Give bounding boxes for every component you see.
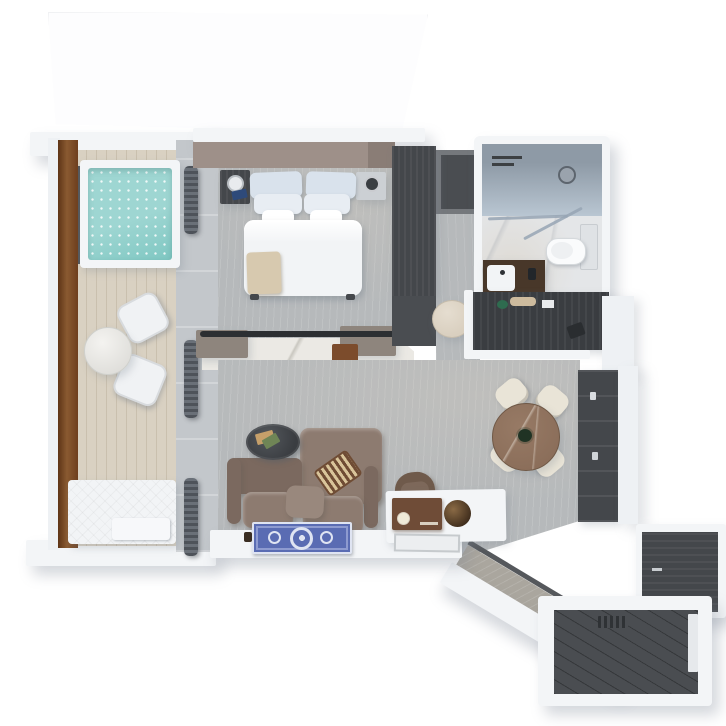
exterior-wall-right — [618, 366, 638, 524]
floor-vent — [598, 616, 628, 628]
sofa-arm-right — [364, 466, 378, 528]
centerpiece-plant — [518, 429, 532, 442]
cabinet-decor — [590, 392, 596, 400]
shower-zone — [482, 144, 602, 216]
floorplan-render — [0, 0, 726, 726]
curtain-bundle — [184, 166, 198, 234]
sofa-cushion — [285, 485, 325, 519]
bed-foot — [346, 294, 355, 300]
vanity-decor — [528, 268, 536, 280]
closet-handle — [652, 568, 662, 571]
table-lamp-right — [364, 176, 380, 192]
decor-bowl — [444, 500, 471, 527]
exterior-wall-upper-right — [602, 296, 634, 376]
rug-medallion-small — [320, 531, 333, 544]
desk-green-glass — [497, 300, 508, 309]
outdoor-dining-table — [84, 327, 132, 375]
desk-tray — [510, 297, 536, 306]
desk-wall-trim-v — [464, 290, 473, 358]
rug-medallion-small — [268, 531, 281, 544]
throw-blanket — [246, 251, 281, 294]
radio-dial — [397, 512, 410, 525]
writing-desk — [473, 292, 609, 350]
headboard-wall-notch — [368, 142, 395, 168]
plunge-pool-water — [88, 168, 172, 260]
desk-paper — [542, 300, 554, 308]
wardrobe-lower — [392, 296, 436, 346]
cabinet-decor — [592, 452, 598, 460]
shower-fixture-bar — [492, 163, 514, 166]
wardrobe — [392, 146, 436, 296]
shelf-unit-inner — [441, 155, 475, 209]
sun-lounger-cushion — [112, 518, 170, 540]
headboard-wall — [193, 142, 395, 168]
decor-hourglass — [244, 532, 252, 542]
shower-fixture-bar — [492, 156, 522, 159]
wall-cabinetry — [578, 370, 618, 522]
entry-door — [688, 614, 698, 672]
tv-rail — [200, 331, 396, 337]
sofa-arm-left — [227, 458, 241, 524]
toilet-seat — [551, 242, 573, 259]
rug-medallion — [290, 527, 313, 550]
sink-faucet — [500, 270, 505, 275]
radio-slot — [420, 522, 438, 525]
curtain-bundle — [184, 478, 198, 556]
balcony-canopy — [48, 12, 428, 134]
desk-wall-trim-h — [464, 350, 590, 359]
picture-frame — [394, 533, 460, 552]
bedroom-roof-edge — [193, 128, 425, 142]
bed-foot — [250, 294, 259, 300]
vanity-sink — [487, 265, 515, 291]
shower-head — [558, 166, 576, 184]
